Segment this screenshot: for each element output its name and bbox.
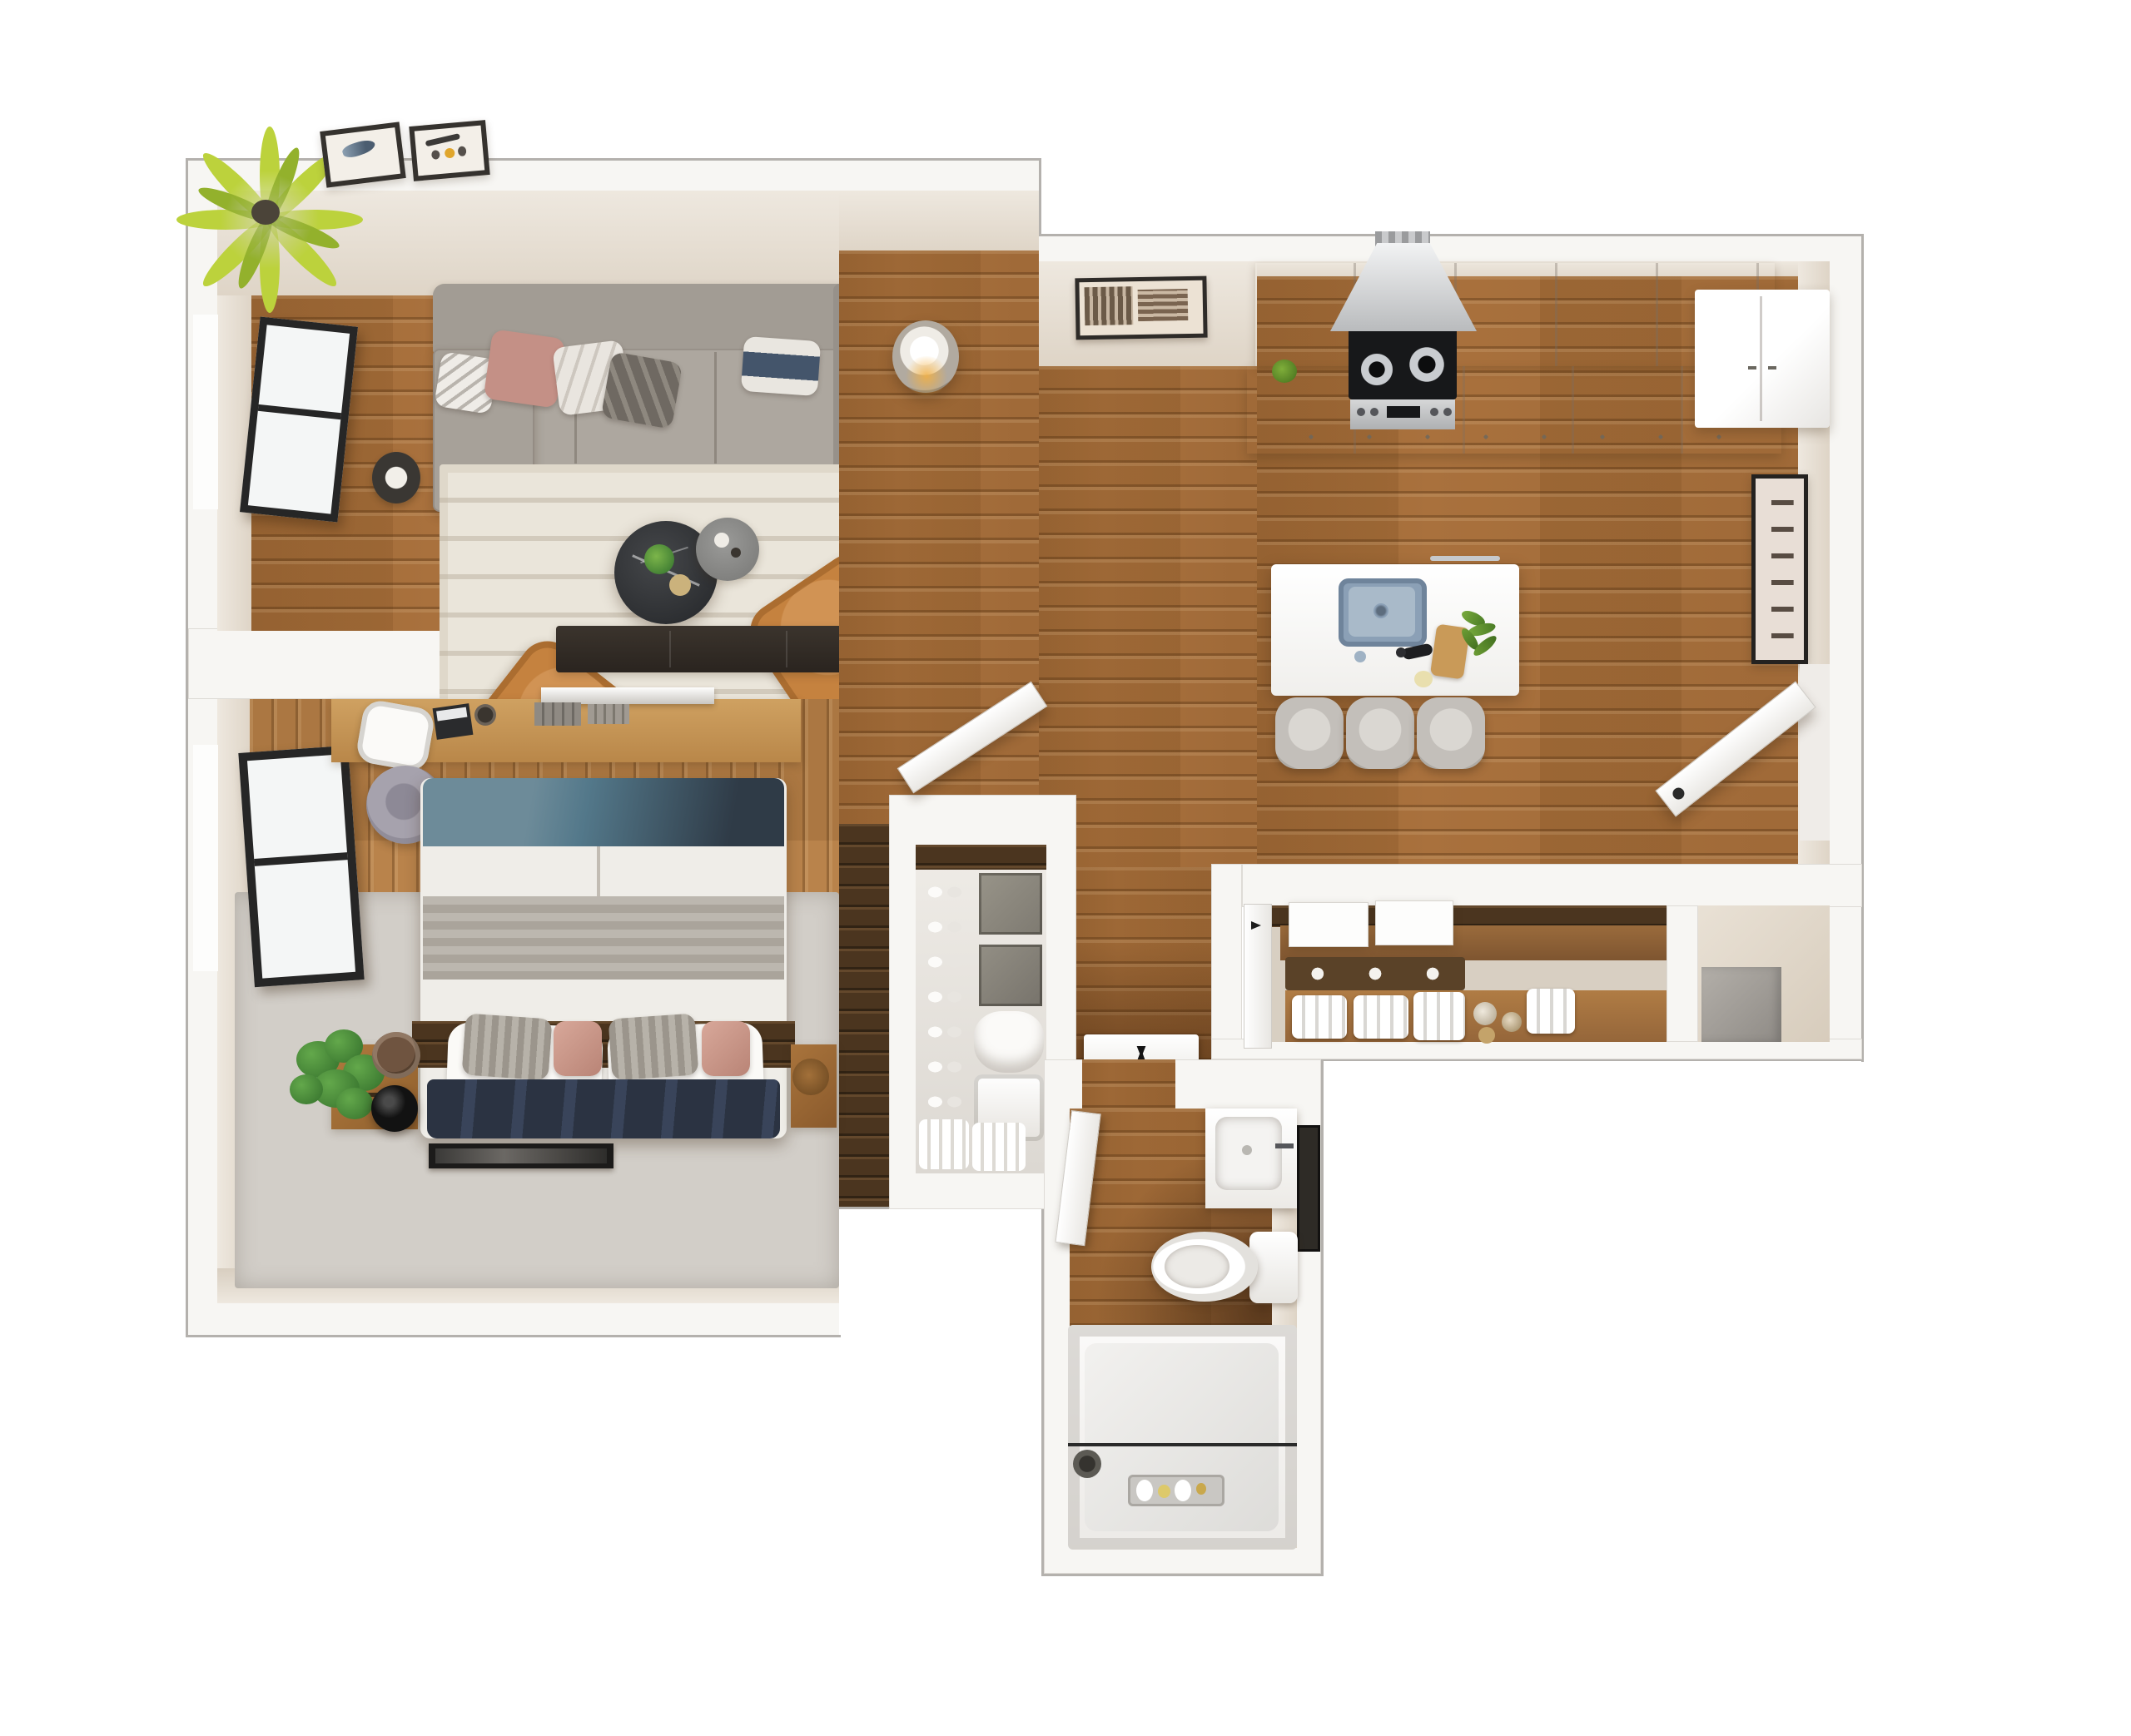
floor-plan-render [0,0,2131,1736]
desk-lamp [474,704,496,726]
sofa-seam-2 [714,352,717,464]
living-casement-window [240,316,358,522]
bedroom-window-slot [193,745,218,971]
wall-linen-top [1242,864,1862,907]
outline-jog [1039,158,1041,238]
black-vase [371,1085,418,1132]
sink-drain [1242,1145,1252,1155]
utility-closet [1698,905,1830,1042]
faucet-base [1396,647,1406,657]
linen-box-1 [1289,902,1369,947]
wall-art-left [320,122,406,187]
bedroom-casement-window [238,746,364,988]
jar-3 [1478,1027,1495,1044]
mid-wall-face-top [839,191,1039,254]
sofa [433,284,862,480]
linen-closet [1272,905,1667,1042]
side-table [696,518,759,581]
bed [420,778,787,1138]
wall-right [1830,236,1861,1059]
linen-box-2 [1375,900,1453,945]
laptop [433,703,474,740]
entry-door-handle [1671,786,1687,802]
accent-pillow-blush-1 [554,1021,602,1076]
towel-stack-4 [1527,989,1575,1034]
entry-art [1751,474,1808,664]
dried-grass [792,1059,829,1095]
outline-bottom-left [186,1335,841,1337]
jar-2 [1502,1012,1522,1032]
sink-faucet [1275,1143,1294,1148]
shoe-rack [921,875,969,1124]
bathtub [1068,1325,1297,1550]
entry-threshold [1800,664,1830,841]
closet-pillows [974,1011,1044,1073]
towel-stack-3 [1413,992,1465,1040]
towel-stack-1 [1292,995,1347,1039]
linen-door-handle [1251,921,1261,930]
desk-chair [355,698,436,773]
table-dish [669,574,691,596]
toilet-bowl [1151,1232,1258,1302]
island-sink [1339,578,1427,647]
bed-knit-blanket [423,896,784,980]
vanity [1205,1109,1297,1208]
lemon [1414,671,1433,687]
pillow-blush-1 [484,329,566,408]
bar-stool-1 [1275,697,1344,769]
storage-box-1 [979,873,1042,935]
shower-rod [1068,1443,1297,1446]
desk-books-2 [588,704,629,724]
bed-navy-drape [427,1079,780,1138]
palm-pot [251,200,280,225]
side-stool-black [372,452,420,503]
refrigerator [1695,290,1830,428]
produce-item [1272,360,1297,383]
closet-back-wall [916,845,1046,870]
wall-shelf [541,687,714,704]
bed-teal-blanket [423,778,784,846]
range [1349,321,1457,429]
wall-bottom-bedroom [188,1303,839,1335]
notch-floor [1039,366,1257,867]
soap-dot [1354,651,1366,662]
outline-bath-bottom [1041,1574,1324,1576]
mirror [1297,1125,1320,1252]
desk-books-1 [534,702,581,726]
cabinet-handles [1282,433,1748,441]
pillow-dark-pattern [601,351,683,429]
floor-frame [429,1143,613,1168]
range-front [1350,399,1455,429]
bar-stool-3 [1417,697,1485,769]
bath-caddy [1128,1475,1224,1506]
toilet [1151,1227,1299,1307]
jar-1 [1473,1002,1497,1025]
pillow-navy-band [741,336,821,396]
table-plant [644,544,674,574]
accent-pillow-gray-1 [462,1013,553,1080]
living-window-slot [193,315,218,509]
living-wall-face-top [217,191,839,299]
shower-head [1073,1450,1101,1478]
walk-in-closet [916,845,1046,1173]
accent-pillow-gray-2 [609,1013,699,1080]
linen-door [1244,904,1272,1049]
wall-top-right [1039,236,1861,261]
wall-art-right [409,120,489,181]
kitchen-island [1271,564,1519,696]
accent-pillow-blush-2 [702,1021,750,1076]
bar-stool-2 [1346,697,1414,769]
closet-basket-2 [972,1123,1026,1171]
island-towel-bar [1430,556,1500,561]
window-muntin-h [258,404,341,419]
outline-right [1861,234,1864,1062]
linen-basket-row [1285,957,1465,990]
storage-box-2 [979,945,1042,1006]
closet-basket-1 [919,1119,969,1169]
niche-wall-art [1075,276,1207,340]
cooktop [1349,321,1457,399]
outline-bath-right [1321,1059,1324,1576]
plant-pot [372,1032,420,1079]
bathroom [1070,1109,1297,1548]
towel-stack-2 [1354,995,1408,1039]
bath-doorway-floor [1082,1059,1175,1109]
utility-unit [1701,967,1781,1042]
floor-lamp-glow [904,356,949,396]
bedroom-accent-wall [839,824,889,1207]
wall-linen-divider [1667,905,1698,1042]
